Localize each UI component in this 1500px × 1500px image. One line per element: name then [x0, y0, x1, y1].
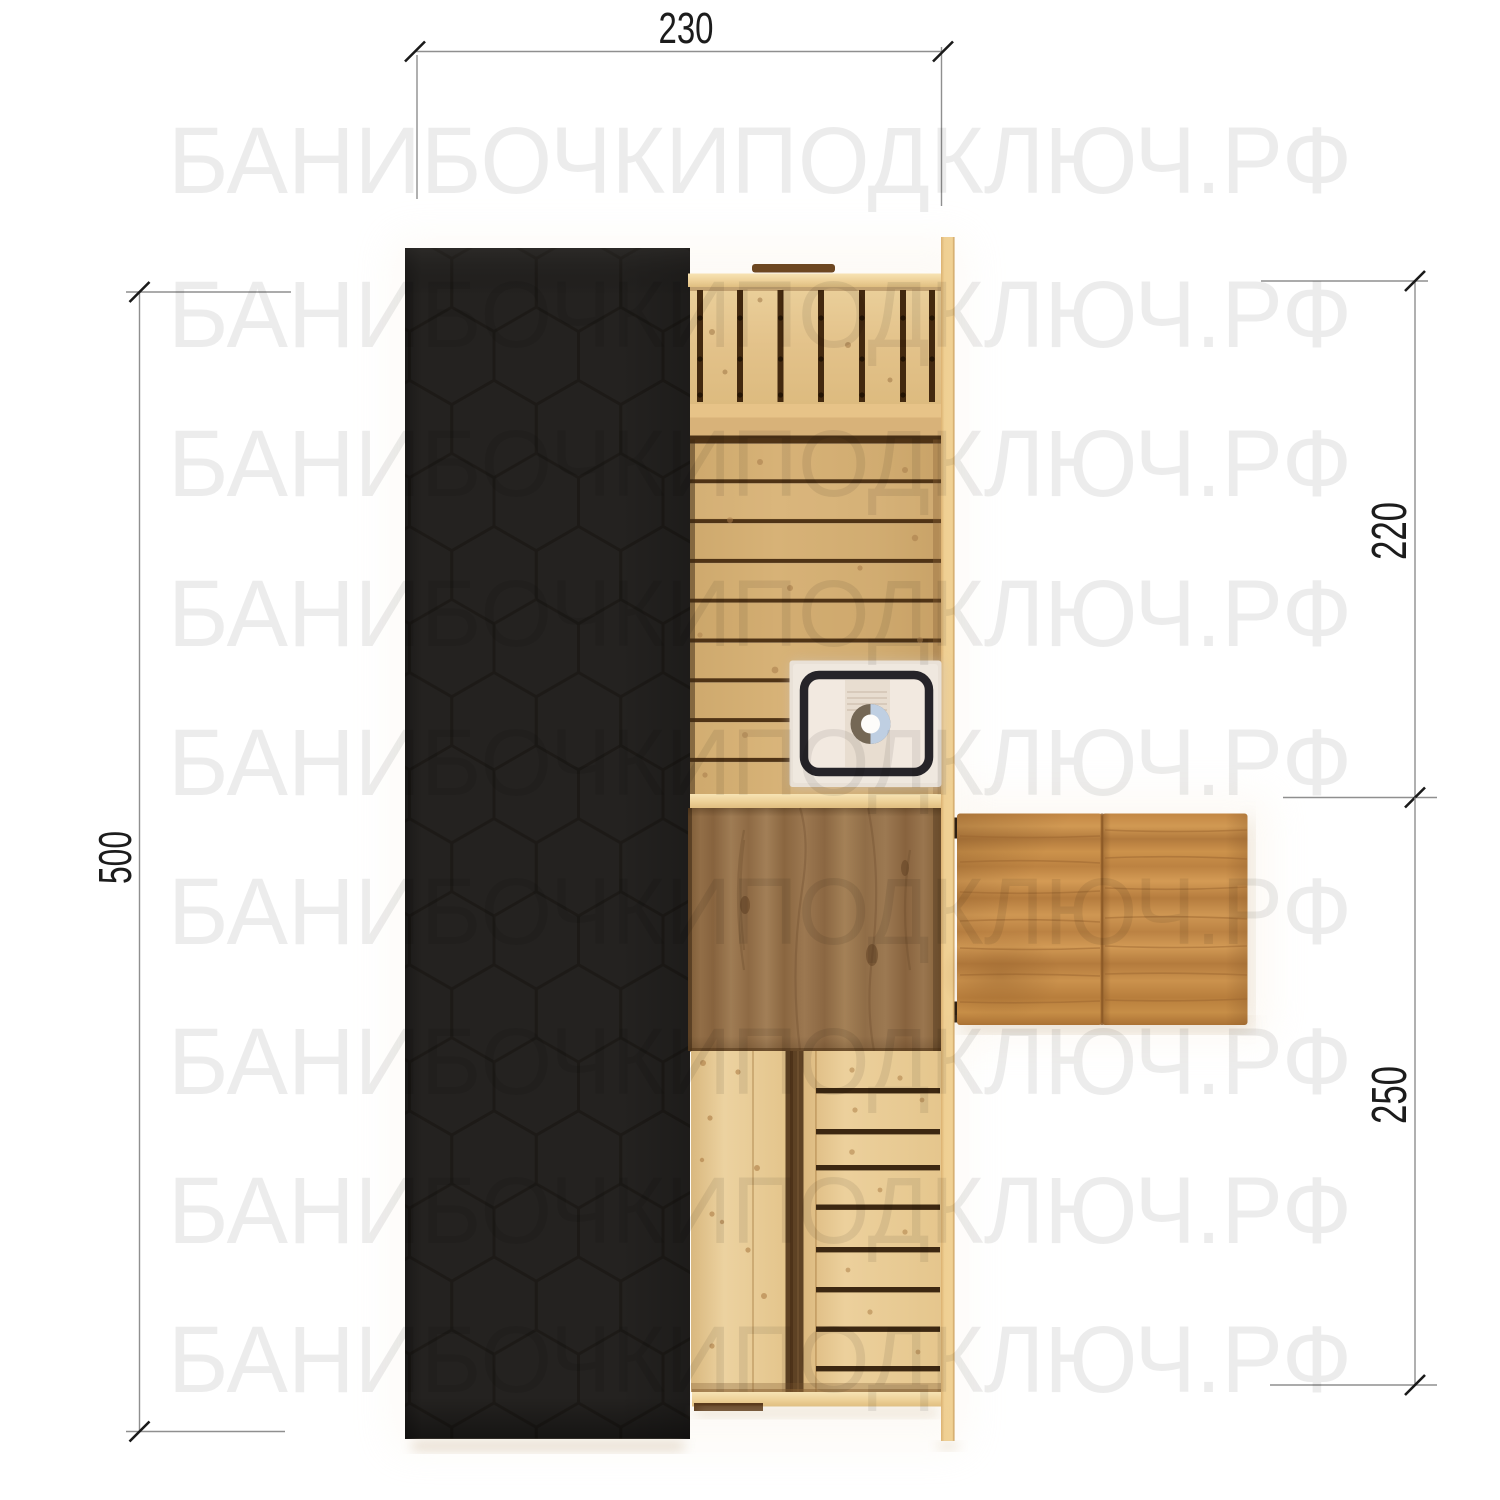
svg-text:БАНИБОЧКИПОДКЛЮЧ.РФ: БАНИБОЧКИПОДКЛЮЧ.РФ	[168, 1307, 1352, 1413]
svg-text:БАНИБОЧКИПОДКЛЮЧ.РФ: БАНИБОЧКИПОДКЛЮЧ.РФ	[168, 859, 1352, 965]
svg-text:БАНИБОЧКИПОДКЛЮЧ.РФ: БАНИБОЧКИПОДКЛЮЧ.РФ	[168, 108, 1352, 214]
svg-text:230: 230	[659, 4, 714, 53]
svg-text:БАНИБОЧКИПОДКЛЮЧ.РФ: БАНИБОЧКИПОДКЛЮЧ.РФ	[168, 1009, 1352, 1115]
svg-text:БАНИБОЧКИПОДКЛЮЧ.РФ: БАНИБОЧКИПОДКЛЮЧ.РФ	[168, 561, 1352, 667]
svg-text:500: 500	[89, 831, 141, 884]
svg-text:БАНИБОЧКИПОДКЛЮЧ.РФ: БАНИБОЧКИПОДКЛЮЧ.РФ	[168, 411, 1352, 517]
svg-text:БАНИБОЧКИПОДКЛЮЧ.РФ: БАНИБОЧКИПОДКЛЮЧ.РФ	[168, 262, 1352, 368]
svg-text:220: 220	[1363, 502, 1417, 560]
svg-text:БАНИБОЧКИПОДКЛЮЧ.РФ: БАНИБОЧКИПОДКЛЮЧ.РФ	[168, 1158, 1352, 1264]
svg-text:БАНИБОЧКИПОДКЛЮЧ.РФ: БАНИБОЧКИПОДКЛЮЧ.РФ	[168, 710, 1352, 816]
svg-text:250: 250	[1363, 1066, 1417, 1124]
